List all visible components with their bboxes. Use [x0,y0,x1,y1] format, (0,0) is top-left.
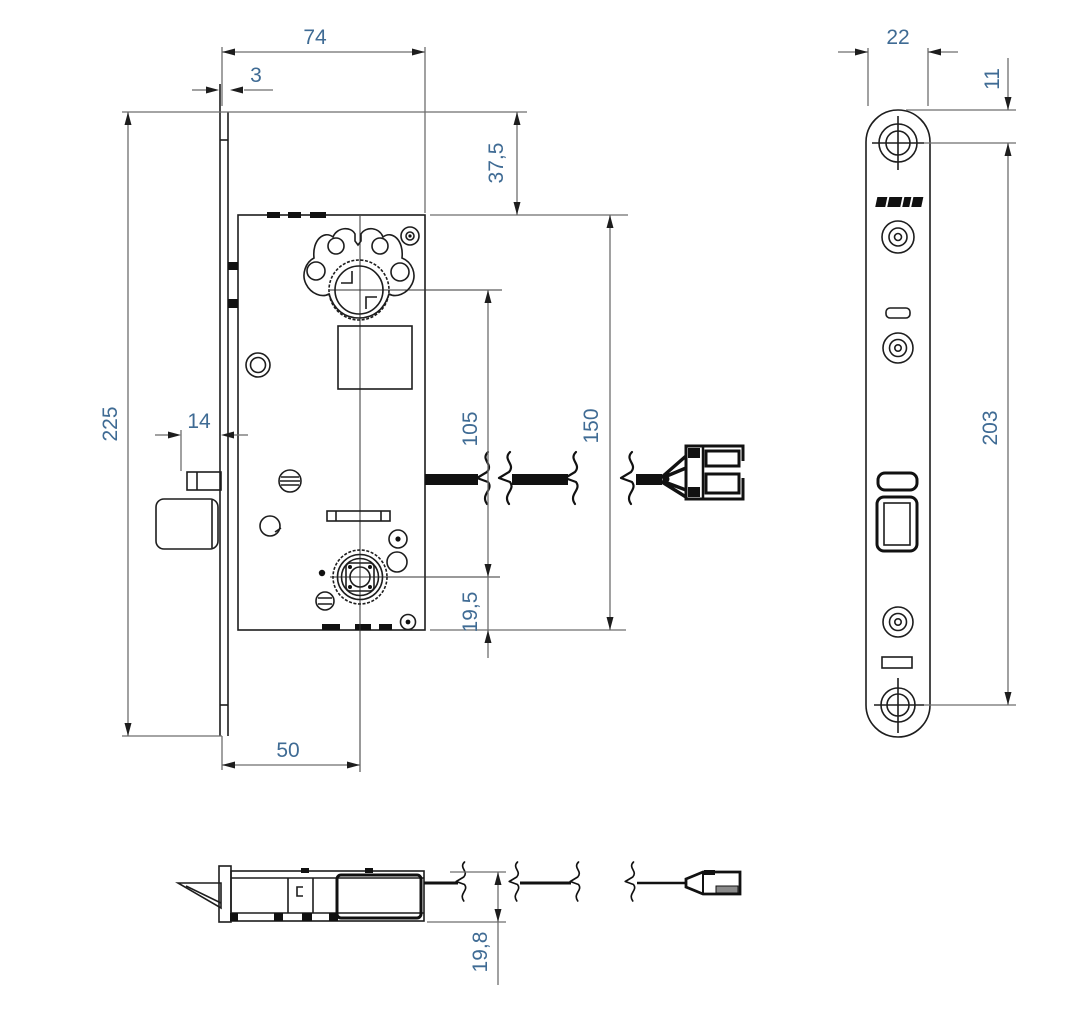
auxiliary-latch [187,472,221,490]
break-mark [499,452,512,504]
break-mark [565,452,578,504]
screw-ring-dot [395,536,400,541]
cam-hole [328,238,344,254]
case-tab [267,212,280,218]
pin-dot [319,570,325,576]
dim-case-height: 150 [580,408,603,443]
connector-slot [706,474,739,493]
latch-wedge-inner [186,886,221,903]
bottom-view: 19,8 [178,862,740,985]
break-mark [456,862,465,901]
case-tab [355,624,371,630]
slotted-screw [279,470,301,492]
latch-wedge [178,883,221,908]
cam-plate-outline [304,229,414,318]
cable-front [425,446,745,504]
break-mark [509,862,518,901]
dim-case-thickness: 19,8 [469,932,492,973]
hole-left [246,353,270,377]
tab [329,913,338,921]
dim-plate-length: 225 [99,406,122,441]
cable-segment [425,474,478,485]
brand-logo-icon [875,197,923,207]
connector-side [686,870,740,894]
lock-drawing-svg: 74 3 37,5 225 14 105 150 19 [0,0,1080,1010]
slot-bar [327,511,390,521]
cover-block [337,875,421,918]
torx-screw-3 [883,607,913,637]
dim-follower-to-bottom: 19,5 [459,592,482,633]
cable-segment [512,474,568,485]
dim-screw-centres: 203 [979,410,1002,445]
tab [230,913,238,921]
plate-slot-1 [886,308,910,318]
case-screw-br-dot [406,620,411,625]
torx-screw-1 [882,221,914,253]
case-tab [310,212,326,218]
round-hole [260,516,280,536]
slotted-screw-small [316,592,334,610]
case-screw-dot [408,234,411,237]
technical-drawing-page: 74 3 37,5 225 14 105 150 19 [0,0,1080,1010]
dim-plate-thickness: 3 [250,64,262,87]
tab [301,868,309,873]
torx-screw-2 [883,333,913,363]
plate-fixing-tab [228,299,238,308]
cable-segment [636,474,662,485]
connector-pin [688,448,700,458]
phillips-screw-top [872,116,924,170]
tab [365,868,373,873]
case-tab [379,624,392,630]
cam-hole [307,262,325,280]
square-cutout [338,326,412,389]
connector-front [662,446,745,499]
case-tab [322,624,340,630]
faceplate-view [866,110,930,737]
plate-slot-2 [882,657,912,668]
front-dimensions: 74 3 37,5 225 14 105 150 19 [99,26,628,770]
connector-crimp [663,476,670,483]
aux-latch-opening [878,473,917,490]
break-mark [570,862,579,901]
dim-plate-width: 22 [886,26,909,49]
hole-left-inner [251,358,266,373]
main-latch-bolt [156,499,218,549]
bold-hole [387,552,407,572]
main-latch-opening [877,497,917,551]
break-mark [621,452,634,504]
connector-pin [688,487,700,497]
dim-centre-distance: 105 [459,411,482,446]
tab [274,913,283,921]
cam-hole [391,263,409,281]
case-tab [288,212,301,218]
phillips-screw-bottom [874,678,924,733]
dim-case-depth: 74 [303,26,327,49]
connector-slot [706,451,739,466]
tab [302,913,312,921]
dim-top-to-screw: 11 [981,68,1004,90]
dim-backset: 50 [276,739,299,762]
dim-latch-throw: 14 [187,410,211,433]
bracket-mark [297,887,303,896]
break-mark [625,862,634,901]
plate-fixing-tab [228,262,238,270]
cam-hole [372,238,388,254]
dim-top-to-case: 37,5 [485,143,508,184]
